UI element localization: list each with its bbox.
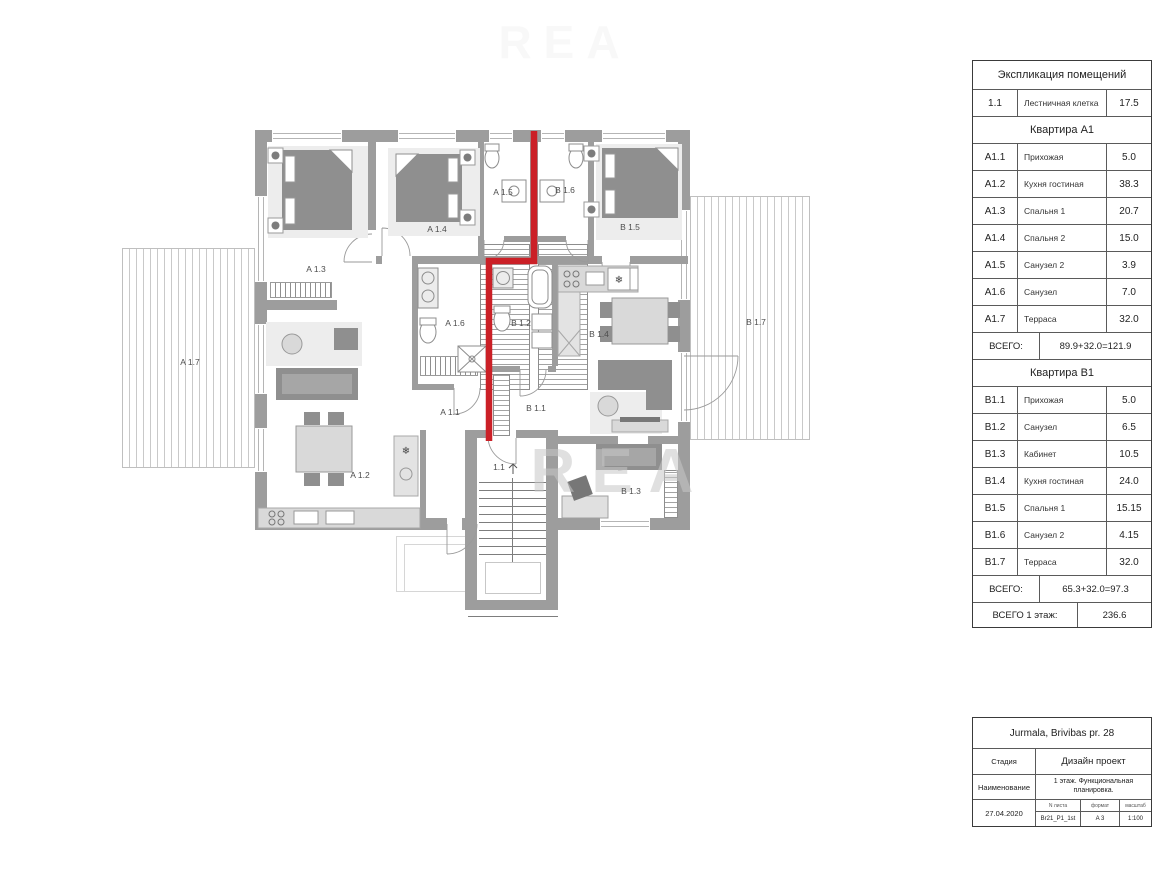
row-id: B1.5: [973, 495, 1018, 521]
row-area: 7.0: [1106, 279, 1151, 305]
row-name: Спальня 1: [1018, 198, 1106, 224]
format-label: формат: [1081, 800, 1119, 812]
row-name: Кабинет: [1018, 441, 1106, 467]
watermark-text: REA: [531, 437, 710, 506]
table-row: A1.4Спальня 215.0: [973, 224, 1151, 251]
bed-a13-icon: [268, 146, 368, 238]
row-area: 32.0: [1106, 549, 1151, 575]
kitchen-b14-icons: ❄: [558, 266, 680, 434]
table-row: B1.5Спальня 115.15: [973, 494, 1151, 521]
format-value: A 3: [1081, 812, 1119, 826]
scale-label: масштаб: [1120, 800, 1151, 812]
row-id: 1.1: [973, 90, 1018, 116]
stair-arrow: [509, 464, 517, 474]
total-label: ВСЕГО:: [973, 576, 1040, 602]
apartment-b-header: Квартира В1: [973, 359, 1151, 386]
row-id: B1.4: [973, 468, 1018, 494]
row-name: Санузел: [1018, 279, 1106, 305]
row-id: B1.1: [973, 387, 1018, 413]
scale-column: масштаб 1:100: [1120, 800, 1151, 826]
apartment-b-total-row: ВСЕГО: 65.3+32.0=97.3: [973, 575, 1151, 602]
room-label-b14: B 1.4: [589, 329, 609, 339]
table-row: B1.1Прихожая5.0: [973, 386, 1151, 413]
table-row: A1.1Прихожая5.0: [973, 143, 1151, 170]
table-row: A1.5Санузел 23.9: [973, 251, 1151, 278]
table-row: B1.3Кабинет10.5: [973, 440, 1151, 467]
row-area: 24.0: [1106, 468, 1151, 494]
room-label-stair: 1.1: [493, 462, 505, 472]
row-area: 15.0: [1106, 225, 1151, 251]
row-name: Санузел 2: [1018, 252, 1106, 278]
table-row: A1.3Спальня 120.7: [973, 197, 1151, 224]
table-row: B1.4Кухня гостиная24.0: [973, 467, 1151, 494]
row-id: B1.6: [973, 522, 1018, 548]
row-area: 17.5: [1106, 90, 1151, 116]
explication-title: Экспликация помещений: [973, 61, 1151, 89]
apartment-a-header: Квартира А1: [973, 116, 1151, 143]
bathroom-b12-fixtures: [493, 266, 552, 348]
apartment-a-total-row: ВСЕГО: 89.9+32.0=121.9: [973, 332, 1151, 359]
row-name: Кухня гостиная: [1018, 171, 1106, 197]
row-id: B1.2: [973, 414, 1018, 440]
room-label-a15: A 1.5: [493, 187, 513, 197]
floor-plan-sheet: ❄: [0, 0, 1170, 878]
sheet-value: Br21_P1_1st: [1036, 812, 1080, 826]
sheet-label: N листа: [1036, 800, 1080, 812]
row-area: 15.15: [1106, 495, 1151, 521]
explication-table: Экспликация помещений 1.1 Лестничная кле…: [972, 60, 1152, 628]
table-row: A1.2Кухня гостиная38.3: [973, 170, 1151, 197]
row-area: 5.0: [1106, 144, 1151, 170]
date-value: 27.04.2020: [973, 800, 1036, 826]
room-label-b12: B 1.2: [511, 318, 531, 328]
row-id: A1.1: [973, 144, 1018, 170]
room-label-a16: A 1.6: [445, 318, 465, 328]
row-id: B1.3: [973, 441, 1018, 467]
row-area: 4.15: [1106, 522, 1151, 548]
total-label: ВСЕГО:: [973, 333, 1040, 359]
row-id: A1.6: [973, 279, 1018, 305]
row-area: 20.7: [1106, 198, 1151, 224]
row-name: Прихожая: [1018, 144, 1106, 170]
kitchen-a12-icons: ❄: [258, 322, 420, 528]
total-value: 89.9+32.0=121.9: [1040, 333, 1151, 359]
row-id: A1.5: [973, 252, 1018, 278]
table-row: B1.7Терраса32.0: [973, 548, 1151, 575]
room-label-b11: B 1.1: [526, 403, 546, 413]
room-label-a11: A 1.1: [440, 407, 460, 417]
row-name: Санузел 2: [1018, 522, 1106, 548]
grand-total-value: 236.6: [1078, 603, 1151, 627]
sheet-column: N листа Br21_P1_1st: [1036, 800, 1081, 826]
row-area: 10.5: [1106, 441, 1151, 467]
grand-total-row: ВСЕГО 1 этаж: 236.6: [973, 602, 1151, 627]
format-column: формат A 3: [1081, 800, 1120, 826]
row-id: B1.7: [973, 549, 1018, 575]
table-row: A1.7Терраса32.0: [973, 305, 1151, 332]
room-label-b13: B 1.3: [621, 486, 641, 496]
table-row: A1.6Санузел7.0: [973, 278, 1151, 305]
grand-total-label: ВСЕГО 1 этаж:: [973, 603, 1078, 627]
row-area: 5.0: [1106, 387, 1151, 413]
row-name: Терраса: [1018, 306, 1106, 332]
room-label-b16: B 1.6: [555, 185, 575, 195]
room-label-b17: B 1.7: [746, 317, 766, 327]
table-row: 1.1 Лестничная клетка 17.5: [973, 89, 1151, 116]
row-name: Спальня 1: [1018, 495, 1106, 521]
bed-a14-icon: [388, 148, 480, 236]
row-area: 38.3: [1106, 171, 1151, 197]
name-label: Наименование: [973, 775, 1036, 799]
scale-value: 1:100: [1120, 812, 1151, 826]
row-name: Терраса: [1018, 549, 1106, 575]
svg-text:❄: ❄: [402, 446, 410, 457]
row-name: Санузел: [1018, 414, 1106, 440]
row-name: Кухня гостиная: [1018, 468, 1106, 494]
name-value: 1 этаж. Функциональная планировка.: [1036, 775, 1151, 799]
row-id: A1.3: [973, 198, 1018, 224]
row-name: Прихожая: [1018, 387, 1106, 413]
stage-label: Стадия: [973, 749, 1036, 774]
row-name: Спальня 2: [1018, 225, 1106, 251]
stage-value: Дизайн проект: [1036, 749, 1151, 774]
table-row: B1.2Санузел6.5: [973, 413, 1151, 440]
project-name: Jurmala, Brivibas pr. 28: [973, 718, 1151, 748]
row-name: Лестничная клетка: [1018, 90, 1106, 116]
room-label-b15: B 1.5: [620, 222, 640, 232]
row-id: A1.7: [973, 306, 1018, 332]
row-id: A1.4: [973, 225, 1018, 251]
table-row: B1.6Санузел 24.15: [973, 521, 1151, 548]
title-block: Jurmala, Brivibas pr. 28 Стадия Дизайн п…: [972, 717, 1152, 827]
row-area: 6.5: [1106, 414, 1151, 440]
watermark-text-top: REA: [498, 16, 631, 68]
room-label-a14: A 1.4: [427, 224, 447, 234]
svg-text:❄: ❄: [615, 275, 623, 286]
room-label-a13: A 1.3: [306, 264, 326, 274]
row-id: A1.2: [973, 171, 1018, 197]
room-label-a12: A 1.2: [350, 470, 370, 480]
total-value: 65.3+32.0=97.3: [1040, 576, 1151, 602]
room-label-a17: A 1.7: [180, 357, 200, 367]
row-area: 3.9: [1106, 252, 1151, 278]
row-area: 32.0: [1106, 306, 1151, 332]
